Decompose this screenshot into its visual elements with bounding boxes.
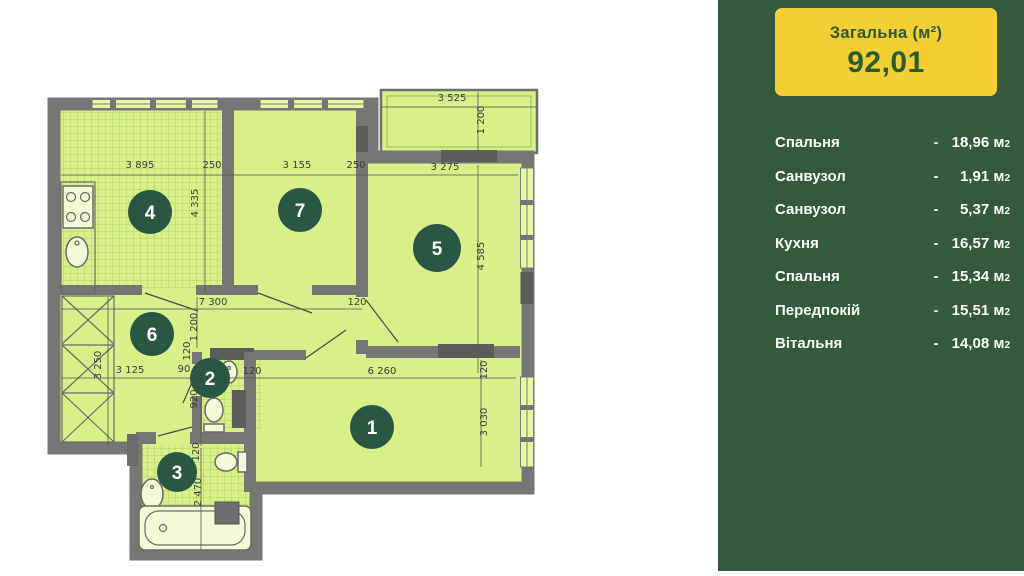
room-name: Спальня [775,268,921,285]
room-area-value: 5,37 м2 [951,201,1010,218]
unit-sup: 2 [1004,206,1010,217]
stove-icon [63,186,93,228]
dimension-label: 3 275 [431,162,460,173]
dash: - [921,235,951,252]
room-number: 4 [145,203,156,224]
page: { "colors": { "panel_bg": "#34593d", "ca… [0,0,1024,571]
washer-icon [215,502,239,524]
dimension-label: 3 895 [126,160,155,171]
room-list: Спальня-18,96 м2Санвузол-1,91 м2Санвузол… [775,126,1010,361]
room-area-value: 14,08 м2 [951,335,1010,352]
room-area-value: 18,96 м2 [951,134,1010,151]
dimension-label: 4 585 [476,242,487,271]
total-area-label: Загальна (м²) [830,24,943,43]
room-number: 5 [432,239,443,260]
room-badge: 1 [350,405,394,449]
dash: - [921,335,951,352]
room-area-value: 16,57 м2 [951,235,1010,252]
room-badge: 4 [128,190,172,234]
dimension-label: 3 030 [479,408,490,437]
room-area-value: 15,34 м2 [951,268,1010,285]
dimension-label: 120 [479,360,490,379]
dimension-label: 3 525 [438,93,467,104]
unit-sup: 2 [1004,240,1010,251]
unit-sup: 2 [1004,139,1010,150]
room-number: 3 [172,463,183,484]
dimension-label: 1 200 [476,106,487,135]
unit-sup: 2 [1004,173,1010,184]
room-name: Санвузол [775,201,921,218]
dash: - [921,302,951,319]
dimension-label: 4 335 [190,189,201,218]
dimension-label: 250 [202,160,221,171]
floor-plan-area: 3 8952503 1552503 2753 5251 2004 3354 58… [0,0,718,571]
unit-sup: 2 [1004,273,1010,284]
bath-sink-icon [141,479,163,509]
dimension-label: 120 [242,366,261,377]
room-badge: 6 [130,312,174,356]
dash: - [921,268,951,285]
room-number: 7 [295,201,306,222]
entry-door [127,434,138,466]
room-name: Спальня [775,134,921,151]
dimension-label: 120 [182,341,193,360]
dimension-label: 2 470 [193,478,204,507]
dimension-label: 1 200 [189,313,200,342]
kitchen-sink-icon [66,237,88,267]
room-badge: 2 [190,358,230,398]
dimension-label: 250 [346,160,365,171]
room-number: 2 [205,369,216,390]
room-name: Санвузол [775,168,921,185]
wc-toilet-icon [204,398,224,432]
room-row: Вітальня-14,08 м2 [775,327,1010,361]
total-area-value: 92,01 [847,46,925,80]
room-row: Спальня-18,96 м2 [775,126,1010,160]
room-row: Санвузол-5,37 м2 [775,193,1010,227]
room-area-value: 15,51 м2 [951,302,1010,319]
dimension-label: 3 250 [93,351,104,380]
room-row: Кухня-16,57 м2 [775,227,1010,261]
unit-sup: 2 [1004,307,1010,318]
unit-sup: 2 [1004,340,1010,351]
room-area-value: 1,91 м2 [951,168,1010,185]
room-row: Передпокій-15,51 м2 [775,294,1010,328]
total-area-card: Загальна (м²) 92,01 [775,8,997,96]
floor-plan-svg: 3 8952503 1552503 2753 5251 2004 3354 58… [0,0,718,571]
room-name: Кухня [775,235,921,252]
room-name: Передпокій [775,302,921,319]
dash: - [921,201,951,218]
toilet-icon [215,452,247,472]
summary-panel: Загальна (м²) 92,01 Спальня-18,96 м2Санв… [718,0,1024,571]
room-badge: 3 [157,452,197,492]
dimension-label: 120 [347,297,366,308]
room-badge: 7 [278,188,322,232]
dash: - [921,168,951,185]
dash: - [921,134,951,151]
dimension-label: 6 260 [368,366,397,377]
dimension-label: 7 300 [199,297,228,308]
room-number: 1 [367,418,378,439]
dimension-label: 3 155 [283,160,312,171]
room-number: 6 [147,325,158,346]
dimension-label: 120 [191,442,202,461]
room-name: Вітальня [775,335,921,352]
room-badge: 5 [413,224,461,272]
room-row: Спальня-15,34 м2 [775,260,1010,294]
dimension-label: 3 125 [116,365,145,376]
room-row: Санвузол-1,91 м2 [775,160,1010,194]
dimension-label: 90 [178,364,191,375]
